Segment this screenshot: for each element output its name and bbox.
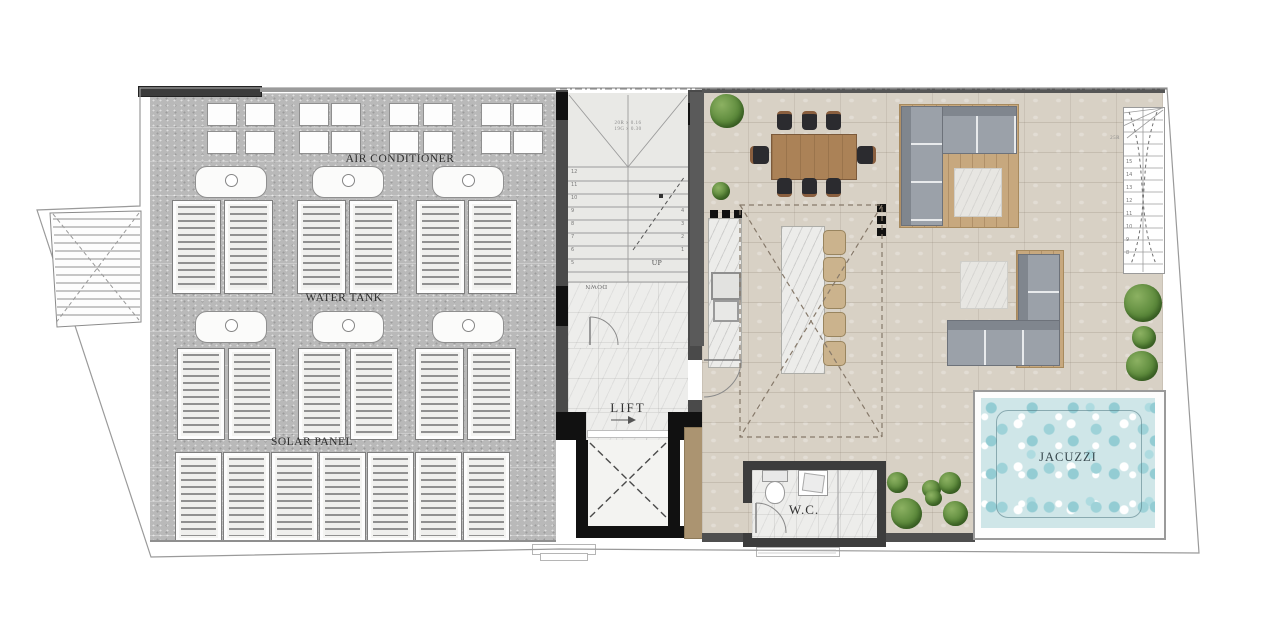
tread-number: 10 [1126, 225, 1132, 230]
exterior-step-ledge [540, 553, 588, 561]
solar-panel [350, 348, 398, 440]
lift-wall-left [576, 440, 588, 535]
solar-panel [224, 200, 273, 294]
wc-sink-basin [802, 473, 825, 494]
bush [943, 501, 968, 526]
terrace-left-wall [690, 92, 704, 346]
water-tank [312, 166, 384, 198]
bush [712, 182, 730, 200]
dining-chair [826, 111, 841, 130]
coffee-table-marble [960, 261, 1008, 309]
bush [939, 472, 961, 494]
air-conditioner-label: AIR CONDITIONER [328, 153, 472, 166]
ac-unit [513, 131, 543, 154]
roof-top-edge-wall [138, 86, 262, 97]
kitchen-hob [713, 300, 739, 322]
water-tank [195, 311, 267, 343]
ac-unit [423, 103, 453, 126]
solar-panel [319, 452, 366, 542]
pergola-column [877, 204, 886, 212]
solar-panel-label: SOLAR PANEL [260, 436, 364, 449]
solar-panel [172, 200, 221, 294]
bush [1126, 351, 1158, 381]
tread-number: 11 [1126, 212, 1132, 217]
lift-wall-top-left [556, 412, 586, 440]
ac-unit [207, 131, 237, 154]
tread-number: 11 [571, 183, 577, 188]
ac-unit [481, 131, 511, 154]
bar-stool [823, 341, 846, 366]
water-tank [195, 166, 267, 198]
ac-unit [513, 103, 543, 126]
pergola-column [877, 216, 886, 224]
solar-panel [349, 200, 398, 294]
solar-panel [298, 348, 346, 440]
tread-number: 12 [571, 170, 577, 175]
dining-chair [857, 146, 876, 164]
bush [1124, 284, 1162, 322]
l-sofa-bottom [947, 320, 1060, 366]
l-sofa-top-return [901, 106, 943, 226]
dining-chair [826, 178, 841, 197]
tread-number: 6 [571, 248, 574, 253]
tread-number: 4 [681, 209, 684, 214]
wc-wall-bottom [743, 538, 886, 547]
lift-wall-right [668, 440, 680, 528]
tread-number: 10 [571, 196, 577, 201]
ac-unit [245, 103, 275, 126]
tread-number: 8 [571, 222, 574, 227]
solar-panel [415, 452, 462, 542]
kitchen-sink [711, 272, 741, 300]
solar-panel [415, 348, 464, 440]
bar-stool [823, 284, 846, 309]
stair-down-label: DOWN [580, 283, 612, 290]
dining-chair [777, 111, 792, 130]
solar-panel [297, 200, 346, 294]
coffee-table-marble [954, 168, 1002, 217]
stairwell-left-column [556, 286, 568, 326]
ac-unit [389, 131, 419, 154]
tread-number: 7 [571, 235, 574, 240]
solar-panel [467, 348, 516, 440]
water-tank [432, 311, 504, 343]
bar-stool [823, 312, 846, 337]
ac-unit [299, 103, 329, 126]
ac-unit [331, 103, 361, 126]
lift-cab-floor [588, 440, 668, 526]
stair-riser-note: 20R x 0.1619G x 0.30 [592, 121, 664, 133]
dining-chair [802, 111, 817, 130]
solar-panel [468, 200, 517, 294]
pergola-column [722, 210, 730, 218]
solar-panel [223, 452, 270, 542]
ac-unit [389, 103, 419, 126]
water-tank [312, 311, 384, 343]
stair-lobby-floor [568, 282, 688, 348]
tread-number: 2 [681, 235, 684, 240]
dining-chair [802, 178, 817, 197]
tread-number: 3 [681, 222, 684, 227]
tread-number: 9 [1126, 238, 1129, 243]
water-tank [432, 166, 504, 198]
wc-label: W.C. [772, 503, 836, 517]
wc-wall-top [743, 461, 886, 470]
jacuzzi-label: JACUZZI [1018, 451, 1118, 465]
tread-number: 5 [571, 261, 574, 266]
bush [925, 490, 942, 506]
solar-panel [463, 452, 510, 542]
tread-number: 9 [571, 209, 574, 214]
tread-number: 15 [1126, 160, 1132, 165]
solar-panel [367, 452, 414, 542]
toilet-bowl [765, 481, 785, 504]
tread-number: 14 [1126, 173, 1132, 178]
solar-panel [228, 348, 276, 440]
lift-threshold [587, 430, 670, 438]
pergola-column [734, 210, 742, 218]
lift-label: LIFT [598, 401, 658, 415]
wc-wall-right [877, 461, 886, 547]
bush [710, 94, 744, 128]
floor-plan-canvas: AIR CONDITIONER WATER TANK SOLAR PANEL [0, 0, 1280, 617]
solar-panel [271, 452, 318, 542]
corridor-left-wall [556, 348, 568, 412]
tread-number: 12 [1126, 199, 1132, 204]
ac-unit [423, 131, 453, 154]
ac-unit [207, 103, 237, 126]
solar-panel [177, 348, 225, 440]
stairwell-left-column [556, 92, 568, 120]
ac-unit [299, 131, 329, 154]
ac-unit [245, 131, 275, 154]
ac-unit [481, 103, 511, 126]
water-tank-label: WATER TANK [292, 292, 396, 305]
solar-panel [175, 452, 222, 542]
dining-chair [750, 146, 769, 164]
terrace-top-wall [702, 88, 1165, 93]
tread-number: 8 [1126, 251, 1129, 256]
roof-top-edge-line [260, 88, 556, 92]
solar-panel [416, 200, 465, 294]
wc-wall-left [743, 533, 752, 547]
tread-number: 1 [681, 248, 684, 253]
pergola-column [710, 210, 718, 218]
wc-wall-left [743, 461, 752, 503]
bar-stool [823, 257, 846, 282]
external-stair-note: 25R [1106, 136, 1124, 142]
ac-unit [331, 131, 361, 154]
pergola-column [877, 228, 886, 236]
dining-table [771, 134, 857, 180]
stair-up-label: UP [645, 259, 669, 267]
tread-number: 13 [1126, 186, 1132, 191]
bush [887, 472, 908, 493]
bar-island [781, 226, 825, 374]
bush [1132, 326, 1156, 349]
bar-stool [823, 230, 846, 255]
wc-threshold [756, 547, 840, 557]
dining-chair [777, 178, 792, 197]
bush [891, 498, 922, 529]
